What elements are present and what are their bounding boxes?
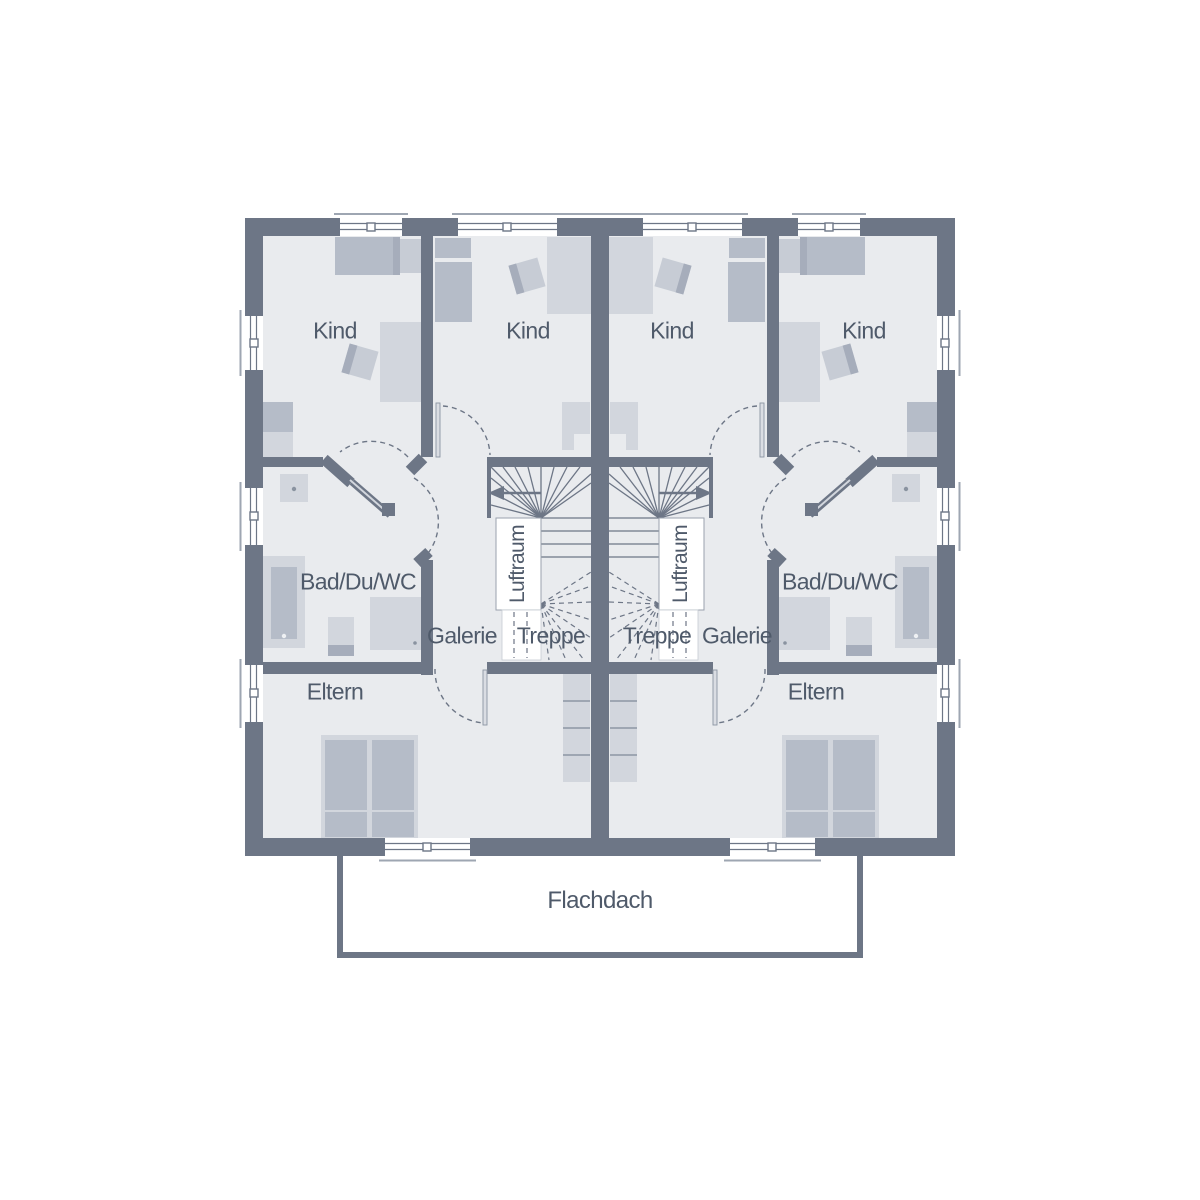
- window-top-1: [340, 218, 402, 236]
- desk-kind-right-outer: [779, 322, 820, 402]
- cabinet-kind-right-inner-2: [626, 434, 638, 450]
- wardrobe-kind-left-outer: [263, 402, 293, 432]
- room-label-luftraum-right: Luftraum: [669, 525, 693, 603]
- room-label-kind-right-outer: Kind: [842, 318, 886, 345]
- toilet-left: [328, 617, 354, 645]
- toilet-right: [846, 617, 872, 645]
- cabinet-kind-left-inner: [562, 402, 590, 434]
- wardrobe-kind-right-outer-2: [907, 432, 937, 457]
- bed-kind-left-outer: [335, 237, 421, 275]
- shower-right: [779, 597, 830, 650]
- room-label-flachdach: Flachdach: [547, 887, 652, 915]
- door-leaf-eltern-left: [483, 670, 487, 725]
- room-label-eltern-left: Eltern: [307, 679, 363, 706]
- window-left-1: [245, 316, 263, 370]
- room-label-bad-left: Bad/Du/WC: [300, 569, 416, 596]
- cabinet-kind-right-inner: [610, 402, 638, 434]
- window-right-1: [937, 316, 955, 370]
- door-leaf-eltern-right: [713, 670, 717, 725]
- room-label-treppe-right: Treppe: [623, 623, 691, 650]
- cabinet-kind-left-inner-2: [562, 434, 574, 450]
- bed-kind-right-inner: [609, 237, 653, 314]
- bed-kind-right-outer: [779, 237, 865, 275]
- window-left-3: [245, 665, 263, 722]
- door-leaf-kind-right-inner: [760, 403, 764, 457]
- wardrobe-kind-right-outer: [907, 402, 937, 432]
- window-bottom-2: [730, 838, 815, 856]
- floor-plan-canvas: Kind Kind Kind Kind Bad/Du/WC Bad/Du/WC …: [0, 0, 1200, 1200]
- window-bottom-1: [385, 838, 470, 856]
- double-bed-eltern-right: [782, 735, 879, 839]
- room-label-bad-right: Bad/Du/WC: [782, 569, 898, 596]
- party-wall: [591, 218, 609, 856]
- room-label-galerie-right: Galerie: [702, 623, 772, 650]
- wardrobe-kind-right-inner: [728, 238, 765, 322]
- wardrobe-kind-left-outer-2: [263, 432, 293, 457]
- door-leaf-kind-left-inner: [436, 403, 440, 457]
- bed-kind-left-inner: [547, 237, 591, 314]
- window-left-2: [245, 488, 263, 545]
- desk-kind-left-outer: [380, 322, 421, 402]
- window-top-4: [798, 218, 860, 236]
- shelf-eltern-right: [610, 674, 637, 782]
- double-bed-eltern-left: [321, 735, 418, 839]
- window-right-2: [937, 488, 955, 545]
- window-top-3: [643, 218, 742, 236]
- shower-left: [370, 597, 421, 650]
- room-label-eltern-right: Eltern: [788, 679, 844, 706]
- window-top-2: [458, 218, 557, 236]
- window-right-3: [937, 665, 955, 722]
- room-label-treppe-left: Treppe: [517, 623, 585, 650]
- room-label-galerie-left: Galerie: [427, 623, 497, 650]
- room-label-luftraum-left: Luftraum: [506, 525, 530, 603]
- floor-plan-drawing: [0, 0, 1200, 1200]
- room-label-kind-left-outer: Kind: [313, 318, 357, 345]
- room-label-kind-left-inner: Kind: [506, 318, 550, 345]
- wardrobe-kind-left-inner: [435, 238, 472, 322]
- room-label-kind-right-inner: Kind: [650, 318, 694, 345]
- shelf-eltern-left: [563, 674, 590, 782]
